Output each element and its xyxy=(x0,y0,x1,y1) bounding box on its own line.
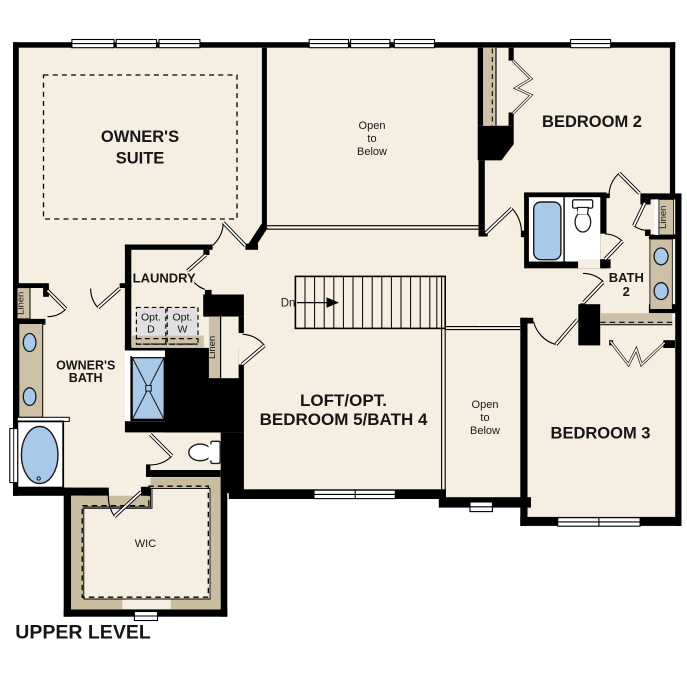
svg-text:Open: Open xyxy=(472,399,499,411)
svg-text:Dn: Dn xyxy=(281,297,296,309)
svg-text:LOFT/OPT.: LOFT/OPT. xyxy=(300,391,387,410)
svg-text:UPPER LEVEL: UPPER LEVEL xyxy=(15,622,151,644)
svg-text:D: D xyxy=(147,323,155,335)
svg-text:BEDROOM 2: BEDROOM 2 xyxy=(542,113,642,131)
svg-text:BATH: BATH xyxy=(69,371,103,385)
svg-text:BEDROOM 5/BATH 4: BEDROOM 5/BATH 4 xyxy=(260,410,428,429)
svg-text:W: W xyxy=(177,323,187,335)
svg-text:Opt.: Opt. xyxy=(141,311,161,323)
svg-text:Linen: Linen xyxy=(658,206,669,229)
svg-text:OWNER'S: OWNER'S xyxy=(101,128,179,146)
svg-text:Linen: Linen xyxy=(207,336,218,359)
svg-text:Below: Below xyxy=(470,425,500,437)
svg-text:BEDROOM 3: BEDROOM 3 xyxy=(551,425,651,443)
svg-text:SUITE: SUITE xyxy=(116,149,165,167)
svg-text:2: 2 xyxy=(623,284,630,299)
svg-text:to: to xyxy=(480,412,489,424)
svg-text:Opt.: Opt. xyxy=(172,311,192,323)
svg-text:Linen: Linen xyxy=(16,292,27,315)
svg-text:to: to xyxy=(367,133,376,145)
svg-text:Below: Below xyxy=(357,146,387,158)
svg-text:LAUNDRY: LAUNDRY xyxy=(133,271,196,286)
svg-text:BATH: BATH xyxy=(609,270,644,285)
svg-text:Open: Open xyxy=(359,120,386,132)
svg-text:WIC: WIC xyxy=(135,538,156,550)
